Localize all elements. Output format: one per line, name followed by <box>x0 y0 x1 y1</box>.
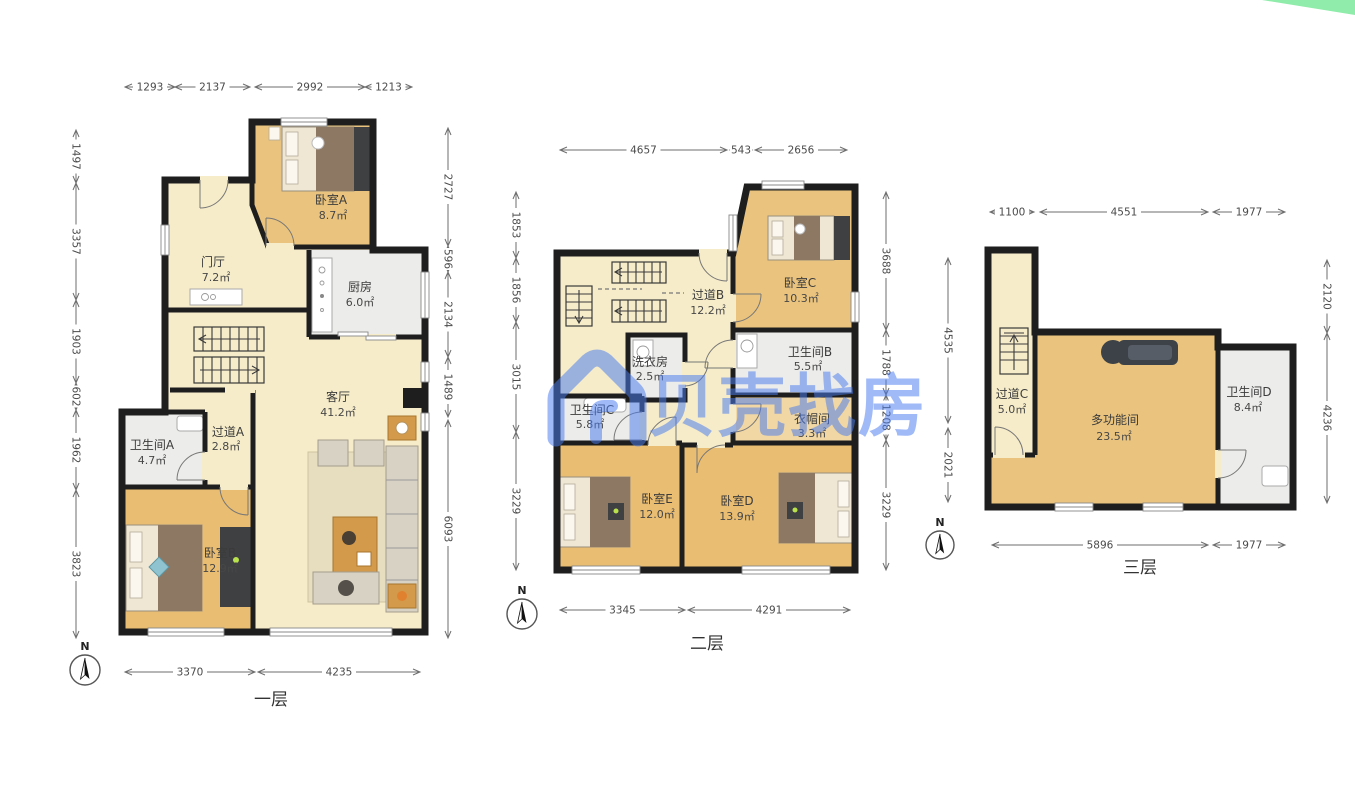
treadmill-icon <box>1101 340 1178 365</box>
dim-label: 4291 <box>688 604 850 617</box>
svg-text:5896: 5896 <box>1087 540 1114 552</box>
sliding-door-icon <box>366 336 396 340</box>
dim-label: 3823 <box>70 490 83 638</box>
dim-label: 1856 <box>510 258 523 322</box>
dim-label: 3345 <box>560 604 685 617</box>
dim-label: 6093 <box>442 420 455 638</box>
dim-label: 543 <box>730 144 752 157</box>
svg-text:2137: 2137 <box>199 82 226 94</box>
svg-text:1856: 1856 <box>510 277 522 304</box>
kitchen-counter-icon <box>312 258 332 332</box>
svg-text:3688: 3688 <box>880 248 892 275</box>
dim-label: 3229 <box>510 432 523 570</box>
svg-text:2727: 2727 <box>442 174 454 201</box>
dim-label: 2137 <box>175 81 250 94</box>
svg-text:596: 596 <box>442 249 454 269</box>
svg-text:1977: 1977 <box>1236 540 1263 552</box>
svg-text:12.9㎡: 12.9㎡ <box>202 562 238 575</box>
svg-text:543: 543 <box>731 145 751 157</box>
svg-text:卧室C: 卧室C <box>784 275 816 290</box>
svg-text:1489: 1489 <box>442 374 454 401</box>
svg-text:1962: 1962 <box>70 437 82 464</box>
shoe-cabinet-icon <box>190 289 242 305</box>
dim-label: 1903 <box>70 300 83 383</box>
dim-label: 2992 <box>255 81 365 94</box>
svg-text:13.9㎡: 13.9㎡ <box>719 510 755 523</box>
dim-label: 3229 <box>880 440 893 570</box>
bed-icon <box>779 473 853 543</box>
washer-icon <box>737 334 757 368</box>
svg-text:12.2㎡: 12.2㎡ <box>690 304 726 317</box>
dim-label: 2021 <box>942 428 955 502</box>
svg-text:3229: 3229 <box>510 488 522 515</box>
dim-label: 1489 <box>442 357 455 417</box>
svg-text:4236: 4236 <box>1321 405 1333 432</box>
dim-label: 4236 <box>1321 333 1334 503</box>
svg-text:2.8㎡: 2.8㎡ <box>212 440 241 453</box>
svg-text:6.0㎡: 6.0㎡ <box>346 296 375 309</box>
dim-label: 602 <box>70 383 83 410</box>
svg-text:4657: 4657 <box>630 145 657 157</box>
compass-icon: N <box>507 584 537 629</box>
svg-text:2134: 2134 <box>442 301 454 328</box>
stairs-icon <box>1000 328 1028 374</box>
dim-label: 3370 <box>125 666 255 679</box>
bath-a-sink-icon <box>177 416 203 431</box>
svg-text:1977: 1977 <box>1236 207 1263 219</box>
svg-text:3015: 3015 <box>510 364 522 391</box>
svg-text:4235: 4235 <box>326 667 353 679</box>
compass-icon: N <box>70 640 100 685</box>
svg-text:4535: 4535 <box>942 327 954 354</box>
dim-label: 1853 <box>510 192 523 258</box>
svg-text:41.2㎡: 41.2㎡ <box>320 406 356 419</box>
dim-label: 1497 <box>70 130 83 183</box>
svg-text:8.7㎡: 8.7㎡ <box>319 209 348 222</box>
svg-text:门厅: 门厅 <box>201 254 225 269</box>
dim-label: 3015 <box>510 322 523 432</box>
svg-text:N: N <box>935 516 944 529</box>
bath-d-sink-icon <box>1262 466 1288 486</box>
dim-label: 1293 <box>125 81 175 94</box>
dim-label: 5896 <box>992 539 1208 552</box>
compass-icon: N <box>926 516 954 559</box>
svg-text:1100: 1100 <box>999 207 1026 219</box>
dim-label: 2656 <box>755 144 847 157</box>
svg-text:10.3㎡: 10.3㎡ <box>783 292 819 305</box>
svg-text:5.0㎡: 5.0㎡ <box>998 403 1027 416</box>
svg-text:8.4㎡: 8.4㎡ <box>1234 401 1263 414</box>
svg-text:卧室B: 卧室B <box>204 545 236 560</box>
svg-text:客厅: 客厅 <box>326 389 350 404</box>
svg-text:602: 602 <box>70 386 82 406</box>
dim-label: 1962 <box>70 410 83 490</box>
svg-text:过道B: 过道B <box>692 288 724 302</box>
svg-text:卫生间A: 卫生间A <box>130 438 175 452</box>
floorplan-drawing: 卧室A 8.7㎡ 门厅 7.2㎡ 厨房 6.0㎡ 客厅 41.2㎡ 卫生间A 4… <box>0 0 1355 800</box>
dim-label: 1100 <box>990 206 1034 219</box>
svg-text:3823: 3823 <box>70 551 82 578</box>
svg-text:3370: 3370 <box>177 667 204 679</box>
dim-label: 2120 <box>1321 260 1334 333</box>
floorplan-page: 卧室A 8.7㎡ 门厅 7.2㎡ 厨房 6.0㎡ 客厅 41.2㎡ 卫生间A 4… <box>0 0 1355 800</box>
svg-text:1853: 1853 <box>510 212 522 239</box>
svg-text:过道A: 过道A <box>212 425 245 439</box>
corner-ribbon <box>1262 0 1355 15</box>
svg-text:卫生间D: 卫生间D <box>1226 385 1271 399</box>
svg-text:12.0㎡: 12.0㎡ <box>639 508 675 521</box>
dim-label: 1977 <box>1213 206 1285 219</box>
svg-text:1213: 1213 <box>375 82 402 94</box>
dim-label: 4535 <box>942 258 955 423</box>
svg-text:卫生间B: 卫生间B <box>788 345 832 359</box>
svg-text:N: N <box>80 640 89 653</box>
svg-text:卧室A: 卧室A <box>315 192 348 207</box>
svg-text:7.2㎡: 7.2㎡ <box>202 271 231 284</box>
svg-text:4291: 4291 <box>756 605 783 617</box>
svg-text:4.7㎡: 4.7㎡ <box>138 454 167 467</box>
svg-text:23.5㎡: 23.5㎡ <box>1096 430 1132 443</box>
floor3-plan: 过道C 5.0㎡ 多功能间 23.5㎡ 卫生间D 8.4㎡ 1100 4551 … <box>926 206 1333 578</box>
bed-icon <box>768 216 850 260</box>
bed-icon <box>560 477 630 547</box>
svg-text:多功能间: 多功能间 <box>1091 413 1139 427</box>
wall-pier <box>403 388 425 408</box>
svg-text:2656: 2656 <box>788 145 815 157</box>
svg-text:3357: 3357 <box>70 228 82 255</box>
dim-label: 596 <box>442 246 455 272</box>
svg-text:3229: 3229 <box>880 492 892 519</box>
bed-icon <box>269 127 371 191</box>
svg-text:洗衣房: 洗衣房 <box>632 354 668 369</box>
svg-text:2992: 2992 <box>297 82 324 94</box>
floor2-title: 二层 <box>690 634 724 654</box>
dim-label: 1977 <box>1213 539 1285 552</box>
svg-text:卧室E: 卧室E <box>641 491 673 506</box>
svg-text:1293: 1293 <box>137 82 164 94</box>
dim-label: 2727 <box>442 128 455 246</box>
svg-text:3345: 3345 <box>609 605 636 617</box>
svg-text:卧室D: 卧室D <box>720 493 753 508</box>
dim-label: 2134 <box>442 272 455 357</box>
svg-text:2120: 2120 <box>1321 283 1333 310</box>
floor1-title: 一层 <box>254 690 288 710</box>
sliding-door-icon <box>338 332 368 336</box>
floor3-title: 三层 <box>1123 558 1157 578</box>
svg-text:N: N <box>517 584 526 597</box>
dim-label: 4551 <box>1040 206 1208 219</box>
dim-label: 3688 <box>880 192 893 330</box>
dim-label: 1213 <box>365 81 412 94</box>
svg-text:2021: 2021 <box>942 452 954 479</box>
svg-text:厨房: 厨房 <box>348 279 372 294</box>
dim-label: 4235 <box>258 666 420 679</box>
dim-label: 3357 <box>70 183 83 300</box>
svg-text:过道C: 过道C <box>996 387 1028 401</box>
dim-label: 4657 <box>560 144 727 157</box>
svg-text:1903: 1903 <box>70 328 82 355</box>
watermark-text: 贝壳找房 <box>648 368 928 447</box>
svg-text:1497: 1497 <box>70 143 82 170</box>
svg-text:6093: 6093 <box>442 516 454 543</box>
svg-text:4551: 4551 <box>1111 207 1138 219</box>
floor1-plan: 卧室A 8.7㎡ 门厅 7.2㎡ 厨房 6.0㎡ 客厅 41.2㎡ 卫生间A 4… <box>70 81 455 710</box>
